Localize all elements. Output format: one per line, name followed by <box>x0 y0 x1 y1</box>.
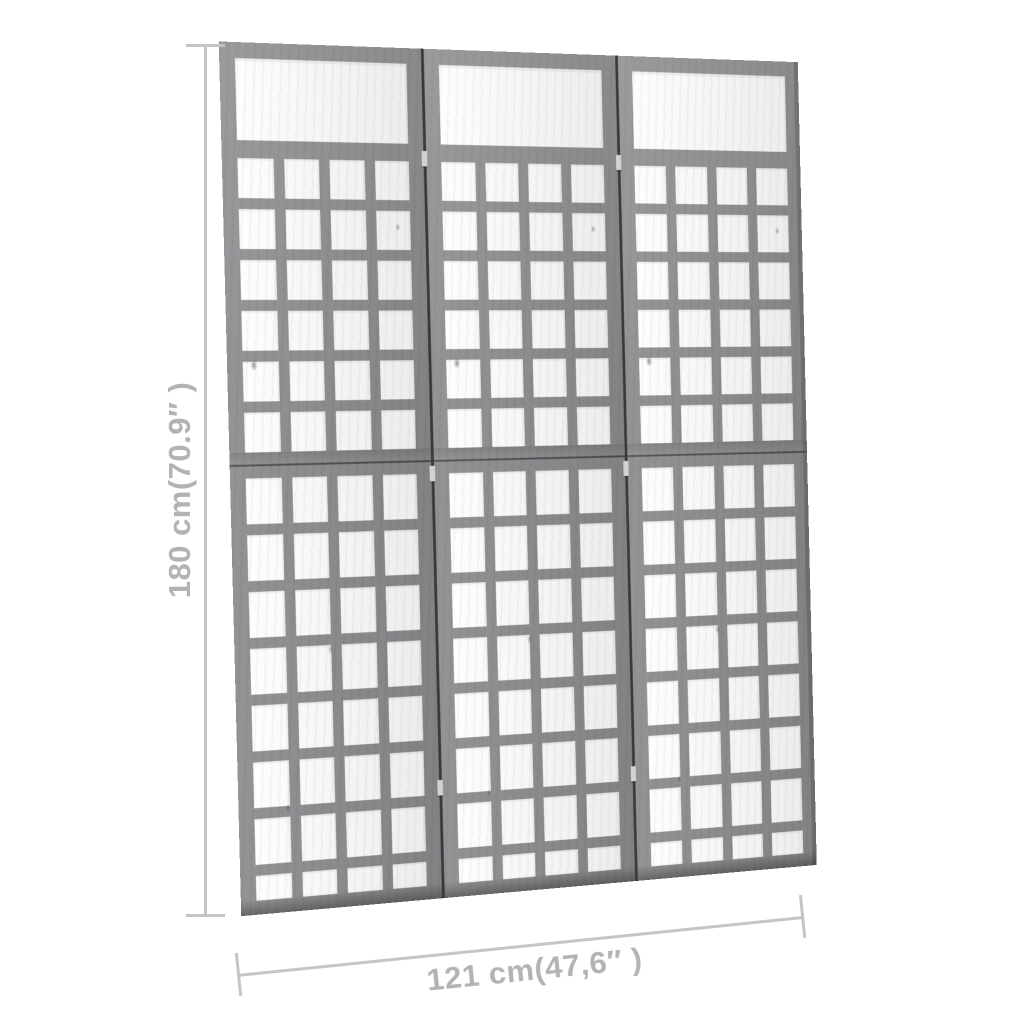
lattice-cell <box>718 262 750 299</box>
lattice-cell <box>726 570 758 614</box>
lattice-cell <box>771 778 802 823</box>
lattice-cell <box>497 635 531 681</box>
lattice-cell <box>340 587 376 634</box>
lattice-cell <box>339 531 375 577</box>
lattice-cell <box>638 310 671 348</box>
lattice-cell <box>649 787 682 833</box>
lattice-cell <box>678 262 710 299</box>
lattice-cell <box>249 591 286 638</box>
lattice-cell <box>768 673 800 717</box>
lower-lattice-grid <box>449 469 620 883</box>
lattice-cell <box>333 311 369 351</box>
lattice-cell <box>640 405 673 443</box>
lattice-cell <box>289 361 325 401</box>
hinge <box>615 155 621 170</box>
lattice-cell <box>388 696 423 743</box>
upper-lattice-grid <box>237 158 416 453</box>
lattice-cell <box>247 534 284 581</box>
panel-top-window <box>235 58 409 144</box>
lattice-cell <box>445 310 480 349</box>
lattice-cell <box>573 262 606 300</box>
lattice-cell <box>541 687 575 733</box>
lattice-cell <box>335 361 371 401</box>
lattice-cell <box>455 692 490 738</box>
lattice-cell <box>770 726 802 770</box>
lattice-cell <box>254 816 291 864</box>
lattice-cell <box>635 214 668 252</box>
lattice-cell <box>384 529 419 575</box>
lattice-cell <box>452 582 487 628</box>
lattice-cell <box>588 845 621 872</box>
lattice-cell <box>685 572 717 616</box>
lattice-cell <box>536 470 570 515</box>
lattice-cell <box>295 589 331 636</box>
lower-lattice-grid <box>246 474 428 901</box>
lattice-cell <box>532 310 566 348</box>
lattice-cell <box>731 781 763 826</box>
lattice-cell <box>381 410 416 450</box>
lattice-cell <box>490 359 524 398</box>
panel-mid-rail <box>245 449 417 479</box>
lattice-cell <box>442 162 477 201</box>
lattice-cell <box>586 792 619 838</box>
lattice-cell <box>502 852 536 879</box>
lattice-cell <box>253 760 290 808</box>
lattice-cell <box>298 701 334 749</box>
lattice-cell <box>725 518 757 562</box>
lattice-cell <box>572 213 605 251</box>
lattice-cell <box>692 837 724 863</box>
lower-lattice-grid <box>641 464 803 866</box>
lattice-cell <box>679 310 711 348</box>
height-dimension-line <box>204 44 207 917</box>
lattice-cell <box>650 840 682 866</box>
lattice-cell <box>390 751 425 798</box>
lattice-cell <box>241 311 278 351</box>
lattice-cell <box>717 215 749 252</box>
lattice-cell <box>533 359 567 398</box>
lattice-cell <box>581 577 614 622</box>
lattice-cell <box>645 627 678 672</box>
lattice-cell <box>634 166 667 204</box>
lattice-cell <box>385 585 420 631</box>
lattice-cell <box>641 467 674 511</box>
lattice-cell <box>485 163 519 202</box>
lattice-cell <box>336 411 372 451</box>
lattice-cell <box>722 404 754 442</box>
lattice-cell <box>528 164 562 203</box>
lattice-cell <box>576 358 609 396</box>
hinge <box>623 461 629 476</box>
lattice-cell <box>496 580 530 626</box>
upper-lattice-grid <box>442 162 611 448</box>
lattice-cell <box>446 359 481 398</box>
lattice-cell <box>376 211 411 250</box>
lattice-cell <box>292 476 328 522</box>
height-dimension-bottom-cap <box>186 914 225 917</box>
lattice-cell <box>582 630 615 675</box>
lattice-cell <box>766 569 798 613</box>
lattice-cell <box>584 684 617 730</box>
upper-lattice-grid <box>634 166 793 444</box>
lattice-cell <box>762 403 793 440</box>
lattice-cell <box>449 472 484 517</box>
lattice-cell <box>244 412 281 453</box>
room-divider <box>219 41 817 916</box>
lattice-cell <box>720 310 752 347</box>
lattice-cell <box>647 680 680 725</box>
lattice-cell <box>392 861 427 888</box>
lattice-cell <box>543 741 577 787</box>
panel-mid-rail <box>641 440 794 468</box>
lattice-cell <box>375 161 410 201</box>
lattice-cell <box>578 469 611 514</box>
lattice-cell <box>453 637 488 683</box>
lattice-cell <box>486 212 520 251</box>
lattice-cell <box>493 471 527 516</box>
lattice-cell <box>531 261 565 299</box>
lattice-cell <box>643 521 676 565</box>
lattice-cell <box>377 261 412 300</box>
lattice-cell <box>338 475 374 521</box>
lattice-cell <box>237 158 274 198</box>
lattice-cell <box>301 813 337 861</box>
trellis-panel <box>615 56 817 881</box>
lattice-cell <box>534 407 568 446</box>
lattice-cell <box>488 261 522 300</box>
lattice-cell <box>293 533 329 580</box>
lattice-cell <box>690 784 722 829</box>
lattice-cell <box>683 466 715 510</box>
lattice-cell <box>684 519 716 563</box>
page: { "product": { "type": "3-panel wooden t… <box>0 0 1024 1024</box>
lattice-cell <box>444 261 479 300</box>
lattice-cell <box>760 309 791 346</box>
lattice-cell <box>688 678 720 723</box>
lattice-cell <box>571 164 604 203</box>
lattice-cell <box>544 795 578 841</box>
lattice-cell <box>346 810 382 858</box>
lattice-cell <box>716 167 748 205</box>
lattice-cell <box>636 262 669 300</box>
hinge <box>422 151 428 167</box>
lattice-cell <box>761 356 792 393</box>
lattice-cell <box>644 574 677 619</box>
lattice-cell <box>530 212 564 251</box>
lattice-cell <box>299 757 335 805</box>
lattice-cell <box>681 405 713 443</box>
lattice-cell <box>348 865 383 893</box>
hinge <box>438 779 444 795</box>
hinge <box>430 466 436 482</box>
lattice-cell <box>331 210 367 250</box>
lattice-cell <box>675 166 707 204</box>
lattice-cell <box>451 527 486 573</box>
lattice-cell <box>243 361 280 401</box>
lattice-cell <box>494 526 528 571</box>
lattice-cell <box>240 260 277 300</box>
lattice-cell <box>686 625 718 670</box>
lattice-cell <box>256 873 292 901</box>
lattice-cell <box>639 358 672 396</box>
panel-mid-rail <box>449 444 611 473</box>
lattice-cell <box>391 806 426 853</box>
lattice-cell <box>330 160 366 200</box>
lattice-cell <box>577 406 610 445</box>
lattice-cell <box>345 754 381 801</box>
lattice-cell <box>380 360 415 399</box>
lattice-cell <box>290 411 326 451</box>
lattice-cell <box>252 704 289 752</box>
lattice-cell <box>448 409 483 448</box>
lattice-cell <box>689 731 721 776</box>
product-dimension-diagram: 180 cm(70.9″ ) 121 cm(47,6″ ) <box>0 0 1024 1024</box>
trellis-panel <box>421 49 635 899</box>
trellis-panel <box>219 41 443 916</box>
lattice-cell <box>537 524 571 569</box>
lattice-cell <box>246 478 283 525</box>
lattice-cell <box>501 798 535 845</box>
lattice-cell <box>763 464 795 507</box>
lattice-cell <box>540 632 574 678</box>
lattice-cell <box>458 801 493 848</box>
lattice-cell <box>296 645 332 692</box>
lattice-cell <box>383 474 418 520</box>
lattice-cell <box>756 168 787 205</box>
lattice-cell <box>728 676 760 720</box>
lattice-cell <box>648 734 681 779</box>
lattice-cell <box>387 640 422 687</box>
lattice-cell <box>456 746 491 793</box>
lattice-cell <box>772 830 803 856</box>
lattice-cell <box>378 310 413 349</box>
lattice-cell <box>721 357 753 395</box>
lattice-cell <box>575 310 608 348</box>
lattice-cell <box>765 516 797 559</box>
lattice-cell <box>767 621 799 665</box>
lattice-cell <box>545 849 578 876</box>
lattice-cell <box>539 578 573 623</box>
lattice-cell <box>732 833 763 859</box>
lattice-cell <box>443 211 478 250</box>
lattice-cell <box>284 159 320 199</box>
panel-top-window <box>439 65 603 148</box>
lattice-cell <box>723 465 755 509</box>
lattice-cell <box>250 647 287 695</box>
lattice-cell <box>759 262 790 299</box>
height-dimension-label: 180 cm(70.9″ ) <box>162 382 198 599</box>
lattice-cell <box>285 210 321 250</box>
lattice-cell <box>343 698 379 745</box>
lattice-cell <box>459 856 493 883</box>
lattice-cell <box>730 728 762 773</box>
lattice-cell <box>342 642 378 689</box>
lattice-cell <box>489 310 523 349</box>
lattice-cell <box>580 523 613 568</box>
lattice-cell <box>498 689 532 735</box>
lattice-cell <box>757 215 788 252</box>
lattice-cell <box>332 260 368 299</box>
lattice-cell <box>500 744 534 790</box>
hinge <box>630 766 636 781</box>
lattice-cell <box>727 623 759 667</box>
lattice-cell <box>585 738 618 784</box>
lattice-cell <box>302 869 338 897</box>
width-dimension: 121 cm(47,6″ ) <box>237 916 804 974</box>
height-dimension-top-cap <box>186 44 225 47</box>
lattice-cell <box>680 357 712 395</box>
lattice-cell <box>677 214 709 252</box>
lattice-cell <box>286 260 322 300</box>
lattice-cell <box>288 311 324 351</box>
width-dimension-label: 121 cm(47,6″ ) <box>425 941 644 999</box>
lattice-cell <box>491 408 525 447</box>
panel-top-window <box>632 71 787 152</box>
lattice-cell <box>239 209 276 249</box>
